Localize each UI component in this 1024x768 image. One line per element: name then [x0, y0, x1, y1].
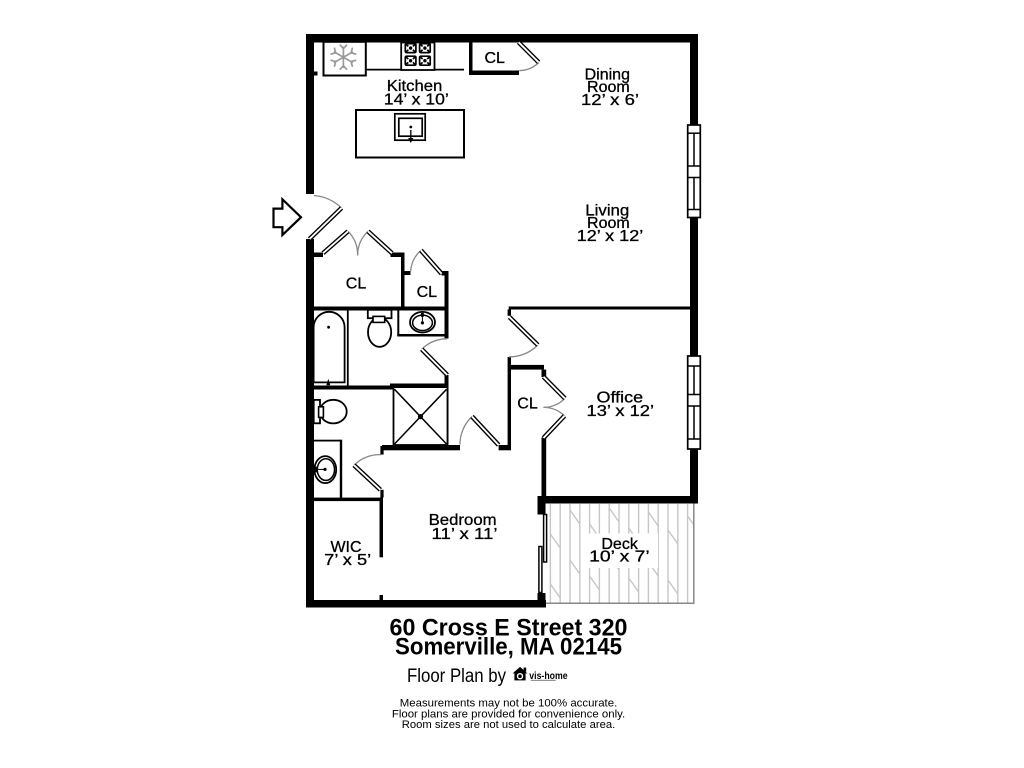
- svg-text:7’ x 5’: 7’ x 5’: [324, 552, 371, 569]
- svg-text:Somerville, MA 02145: Somerville, MA 02145: [395, 634, 622, 661]
- svg-text:CL: CL: [517, 395, 538, 412]
- svg-text:13’ x 12’: 13’ x 12’: [587, 403, 655, 420]
- svg-text:CL: CL: [484, 50, 505, 67]
- svg-text:Floor Plan by: Floor Plan by: [407, 666, 506, 687]
- svg-text:14’ x 10’: 14’ x 10’: [384, 91, 449, 108]
- svg-text:10’ x 7’: 10’ x 7’: [589, 548, 650, 565]
- svg-text:11’ x 11’: 11’ x 11’: [432, 526, 498, 543]
- svg-text:CL: CL: [346, 276, 367, 293]
- svg-text:CL: CL: [417, 284, 438, 301]
- svg-text:12’ x 12’: 12’ x 12’: [577, 228, 644, 245]
- svg-text:12’ x 6’: 12’ x 6’: [581, 92, 639, 109]
- svg-text:Room sizes are not used to cal: Room sizes are not used to calculate are…: [402, 719, 616, 731]
